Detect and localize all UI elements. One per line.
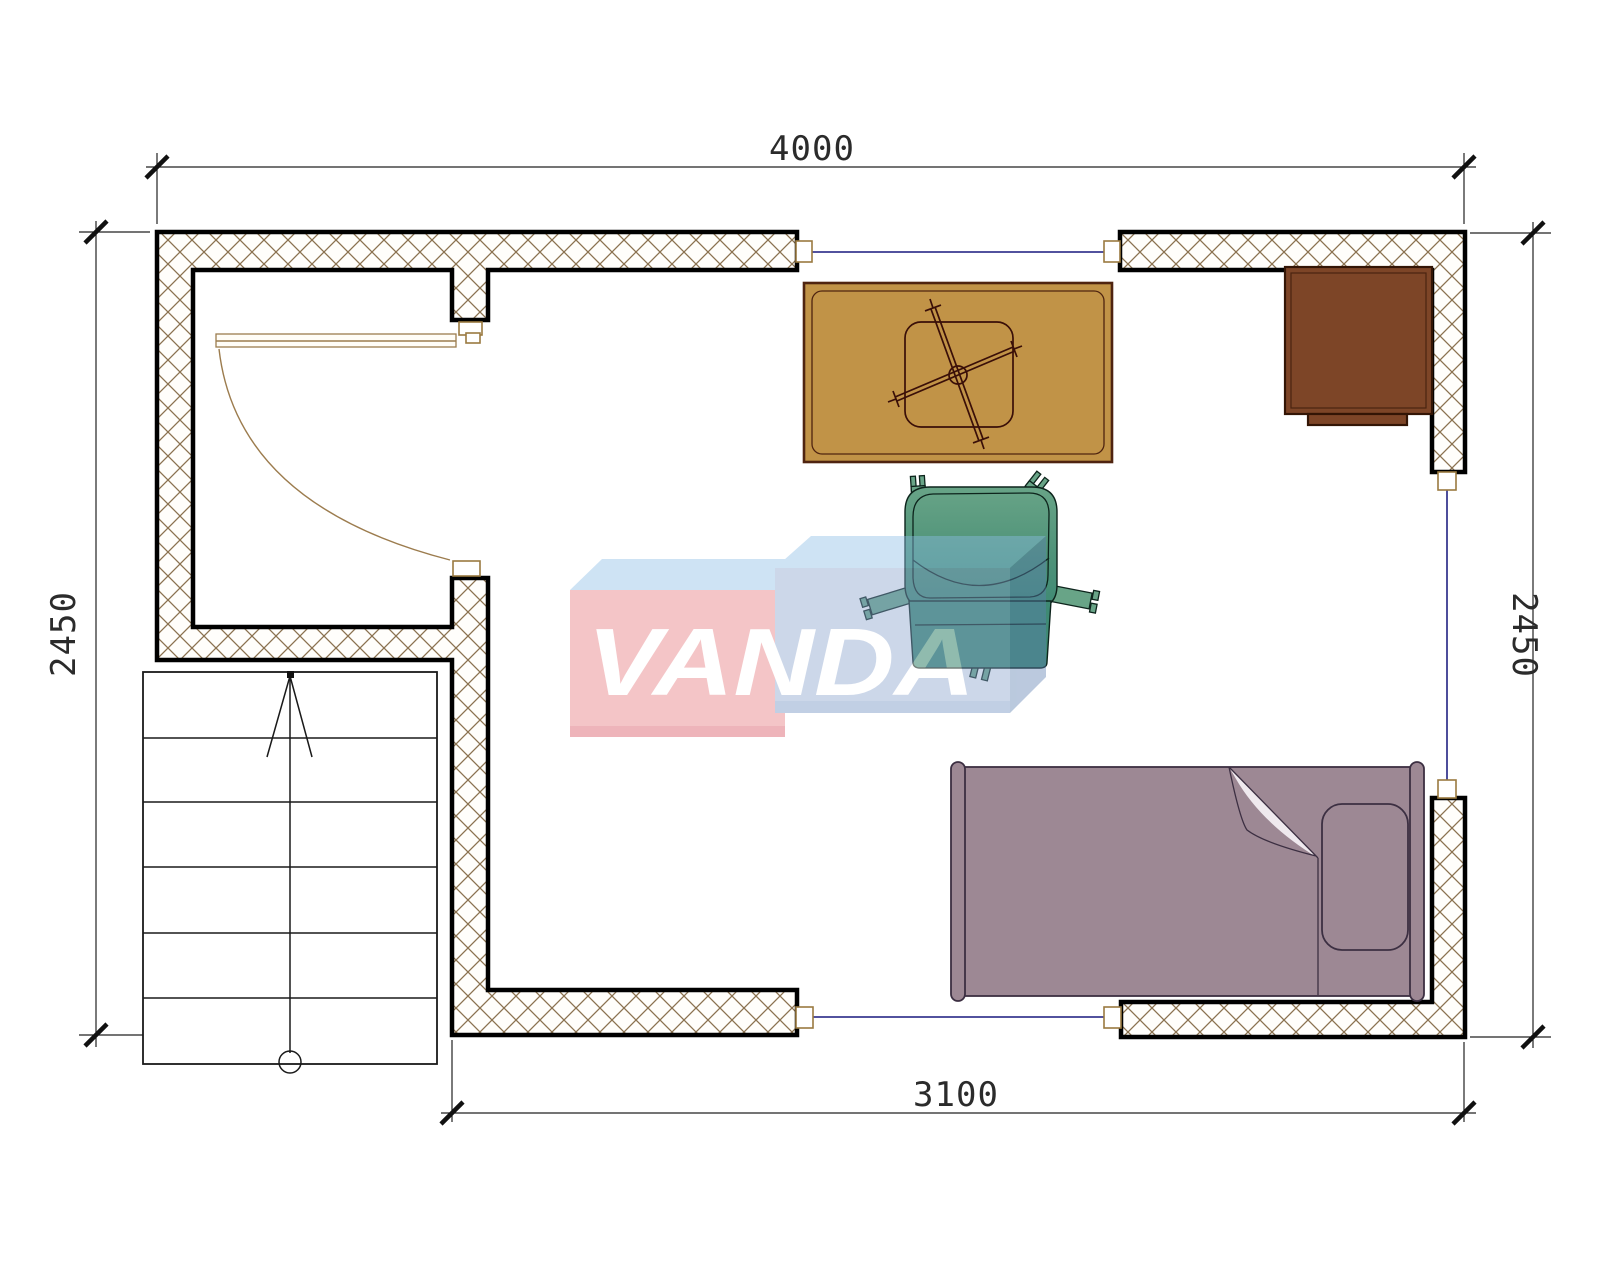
bed-footboard — [1410, 762, 1424, 1001]
stairs — [143, 671, 437, 1073]
floor-plan-drawing: 4000 2450 2450 3100 — [0, 0, 1600, 1280]
window-bottom — [796, 1007, 1121, 1028]
watermark: VANDA — [570, 536, 1046, 737]
bed — [951, 762, 1424, 1001]
dimension-bottom: 3100 — [441, 1040, 1476, 1124]
watermark-cube-right-top — [775, 536, 1046, 568]
dimension-right: 2450 — [1470, 222, 1551, 1048]
watermark-logo-text: VANDA — [587, 609, 975, 716]
dimension-left: 2450 — [44, 221, 150, 1047]
window-right — [1438, 472, 1456, 798]
cabinet — [1285, 267, 1432, 425]
dimension-top-label: 4000 — [769, 129, 855, 169]
floor-plan-canvas: 4000 2450 2450 3100 — [0, 0, 1600, 1280]
dimension-bottom-label: 3100 — [913, 1075, 999, 1115]
dimension-top: 4000 — [146, 129, 1476, 224]
door-arc — [219, 349, 450, 560]
window-top — [796, 241, 1120, 262]
dimension-right-label: 2450 — [1504, 592, 1544, 678]
pillow — [1322, 804, 1408, 950]
door-swing — [216, 322, 482, 576]
bed-headboard — [951, 762, 965, 1001]
table-with-fan — [804, 283, 1112, 462]
dimension-left-label: 2450 — [44, 591, 84, 677]
